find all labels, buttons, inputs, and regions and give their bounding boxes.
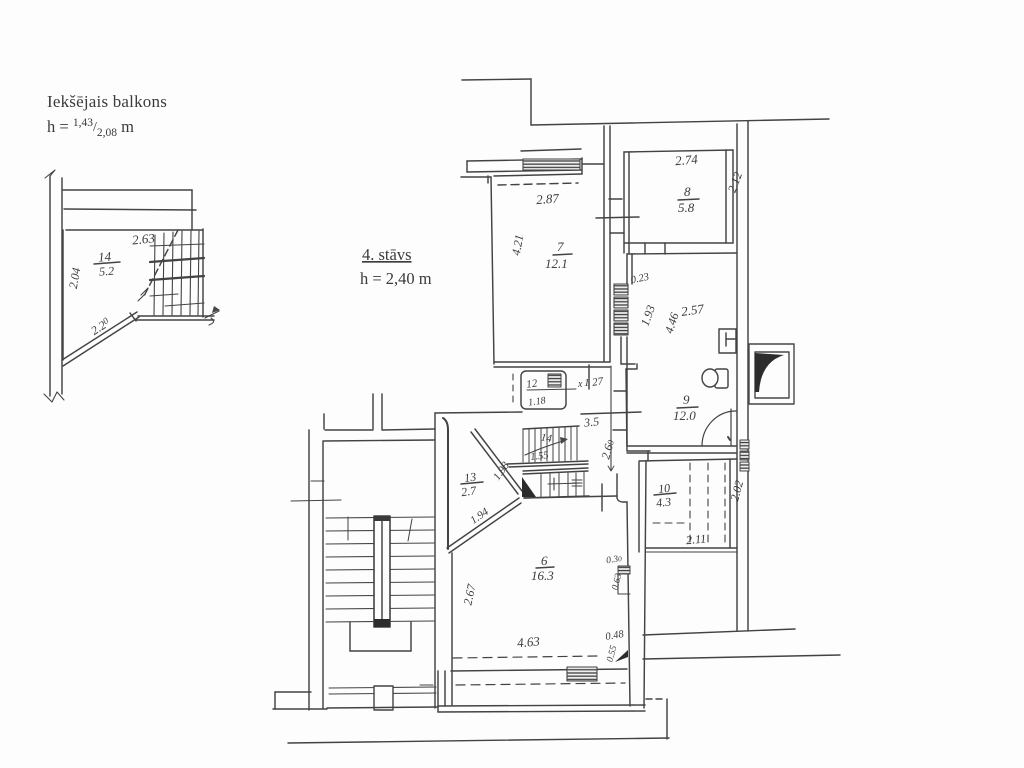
- svg-text:8: 8: [684, 184, 691, 199]
- svg-text:5.8: 5.8: [678, 200, 695, 215]
- svg-text:9: 9: [683, 392, 690, 407]
- svg-text:1: 1: [584, 377, 590, 389]
- svg-text:12.1: 12.1: [545, 256, 568, 271]
- svg-text:2.57: 2.57: [680, 301, 705, 319]
- svg-text:x: x: [577, 379, 583, 390]
- svg-text:27: 27: [591, 375, 604, 388]
- svg-text:1.93: 1.93: [638, 303, 658, 328]
- svg-text:4.46: 4.46: [662, 311, 682, 335]
- svg-text:2.67: 2.67: [460, 582, 478, 606]
- svg-text:14: 14: [540, 432, 553, 445]
- svg-text:h = 2,40 m: h = 2,40 m: [360, 269, 432, 288]
- svg-text:1.94: 1.94: [468, 506, 491, 527]
- svg-text:2.20: 2.20: [88, 315, 112, 338]
- svg-text:4. stāvs: 4. stāvs: [362, 245, 412, 264]
- svg-text:0.23: 0.23: [630, 272, 650, 287]
- svg-text:4.63: 4.63: [516, 633, 540, 650]
- svg-text:2.87: 2.87: [536, 191, 560, 208]
- svg-text:2.12: 2.12: [725, 170, 745, 195]
- svg-text:5.2: 5.2: [99, 264, 115, 279]
- svg-text:7: 7: [557, 239, 564, 254]
- svg-text:Iekšējais balkons: Iekšējais balkons: [47, 92, 167, 111]
- svg-text:0.30: 0.30: [606, 554, 623, 566]
- svg-text:4.3: 4.3: [655, 495, 671, 510]
- svg-text:2.04: 2.04: [66, 267, 83, 290]
- svg-text:2.63: 2.63: [131, 230, 156, 247]
- svg-text:1.55: 1.55: [530, 450, 549, 463]
- svg-text:0.63: 0.63: [610, 572, 624, 591]
- svg-text:12.0: 12.0: [673, 408, 696, 423]
- svg-text:12: 12: [526, 377, 539, 390]
- svg-text:h = 1,43/2,08 m: h = 1,43/2,08 m: [47, 117, 134, 139]
- svg-text:3.5: 3.5: [582, 414, 599, 430]
- svg-text:2.11: 2.11: [685, 531, 706, 547]
- svg-text:6: 6: [541, 553, 548, 568]
- svg-text:4.21: 4.21: [509, 233, 526, 256]
- svg-text:2.60: 2.60: [598, 438, 617, 461]
- svg-text:2.74: 2.74: [674, 151, 698, 168]
- svg-text:2.7: 2.7: [460, 483, 478, 499]
- svg-text:16.3: 16.3: [531, 568, 554, 583]
- svg-text:0.48: 0.48: [605, 629, 626, 643]
